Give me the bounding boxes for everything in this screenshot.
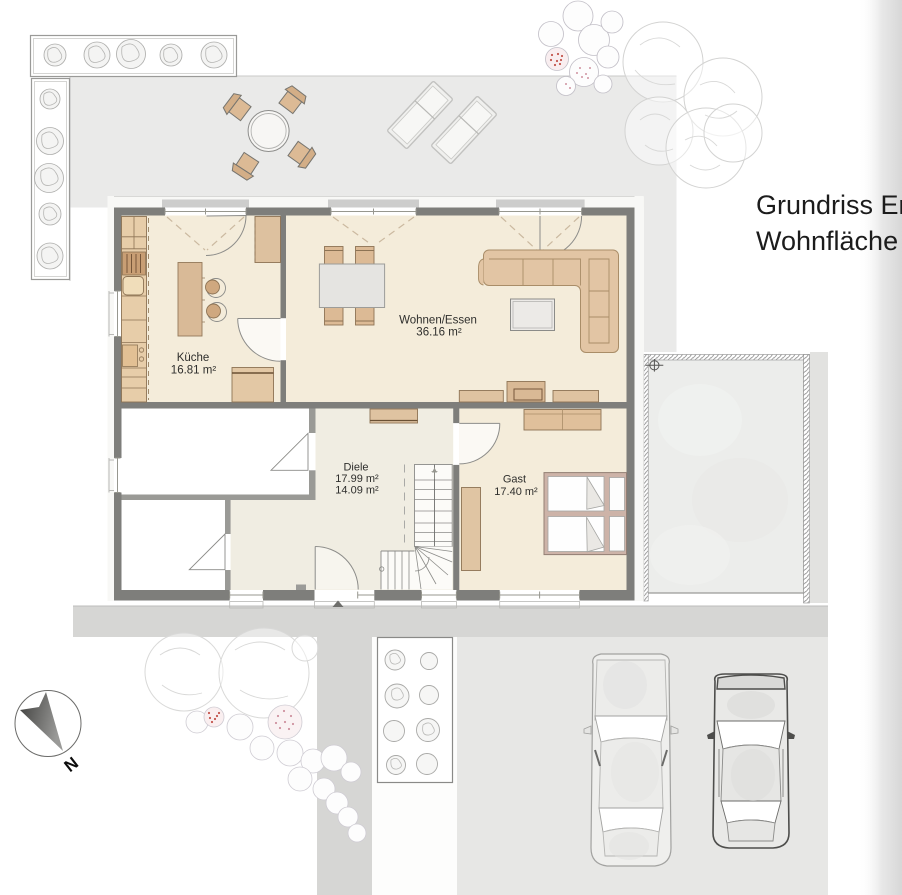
svg-text:Küche: Küche [177, 352, 210, 364]
svg-text:Wohnen/Essen: Wohnen/Essen [399, 315, 477, 327]
svg-text:17.99 m²: 17.99 m² [335, 473, 379, 485]
svg-text:Diele: Diele [343, 462, 368, 474]
svg-text:Gast: Gast [503, 474, 526, 486]
svg-text:Grundriss Erdgeschoss: Grundriss Erdgeschoss [756, 190, 902, 220]
svg-text:16.81 m²: 16.81 m² [171, 365, 217, 377]
svg-text:36.16 m²: 36.16 m² [416, 327, 462, 339]
svg-text:14.09 m²: 14.09 m² [335, 485, 379, 497]
svg-text:Wohnfläche: Wohnfläche [756, 226, 898, 256]
svg-text:17.40 m²: 17.40 m² [494, 486, 538, 498]
